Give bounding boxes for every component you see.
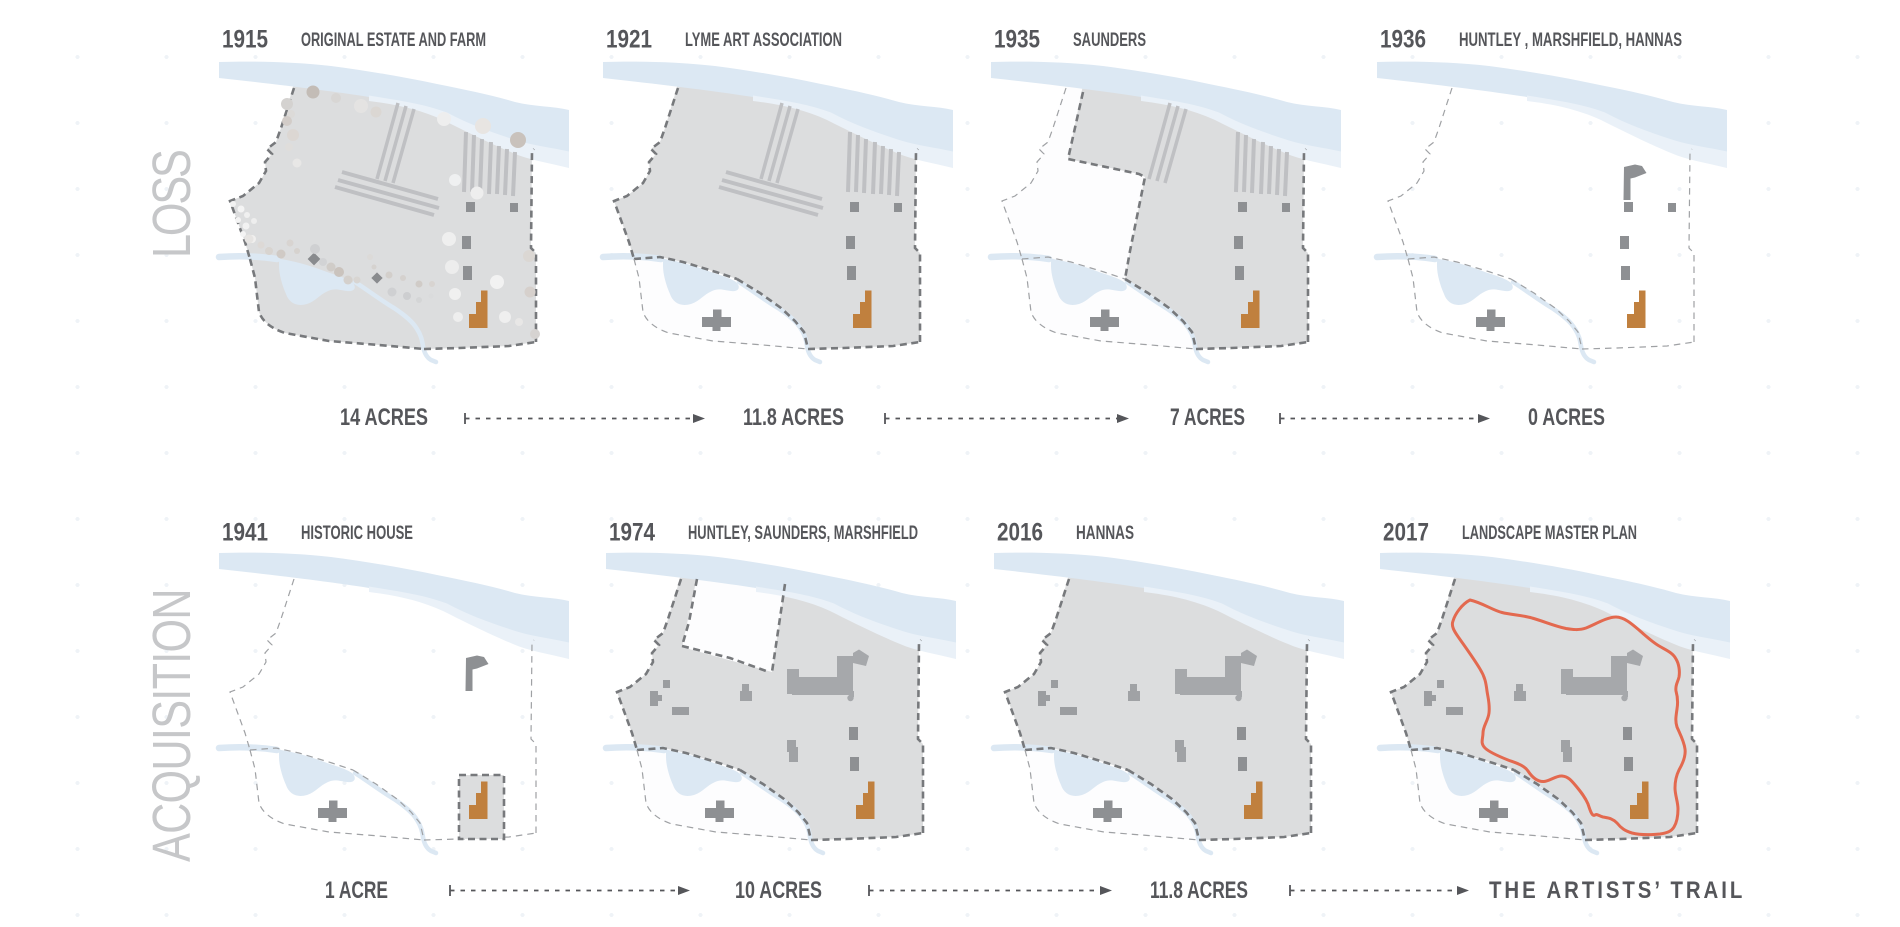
svg-text:LYME ART ASSOCIATION: LYME ART ASSOCIATION — [685, 30, 842, 51]
svg-text:2016: 2016 — [997, 519, 1043, 547]
svg-text:2017: 2017 — [1383, 519, 1429, 547]
svg-text:11.8 ACRES: 11.8 ACRES — [743, 404, 844, 431]
svg-text:ACQUISITION: ACQUISITION — [143, 588, 203, 862]
svg-text:1935: 1935 — [994, 26, 1040, 54]
svg-text:1974: 1974 — [609, 519, 655, 547]
svg-text:LOSS: LOSS — [143, 149, 203, 258]
svg-text:HISTORIC HOUSE: HISTORIC HOUSE — [301, 523, 413, 544]
svg-text:LANDSCAPE MASTER PLAN: LANDSCAPE MASTER PLAN — [1462, 523, 1637, 544]
svg-text:THE ARTISTS’ TRAIL: THE ARTISTS’ TRAIL — [1489, 876, 1742, 903]
svg-text:1941: 1941 — [222, 519, 268, 547]
svg-text:10 ACRES: 10 ACRES — [735, 877, 822, 904]
svg-text:HUNTLEY , MARSHFIELD, HANNAS: HUNTLEY , MARSHFIELD, HANNAS — [1459, 30, 1682, 51]
svg-text:HUNTLEY, SAUNDERS, MARSHFIELD: HUNTLEY, SAUNDERS, MARSHFIELD — [688, 523, 918, 544]
svg-text:HANNAS: HANNAS — [1076, 523, 1134, 544]
svg-text:1 ACRE: 1 ACRE — [325, 877, 388, 904]
svg-text:1921: 1921 — [606, 26, 652, 54]
svg-text:ORIGINAL ESTATE AND FARM: ORIGINAL ESTATE AND FARM — [301, 30, 486, 51]
svg-text:SAUNDERS: SAUNDERS — [1073, 30, 1146, 51]
svg-text:7 ACRES: 7 ACRES — [1170, 404, 1245, 431]
svg-text:11.8 ACRES: 11.8 ACRES — [1150, 877, 1248, 904]
svg-text:14 ACRES: 14 ACRES — [340, 404, 428, 431]
svg-text:1936: 1936 — [1380, 26, 1426, 54]
svg-text:1915: 1915 — [222, 26, 268, 54]
svg-text:0 ACRES: 0 ACRES — [1528, 404, 1605, 431]
